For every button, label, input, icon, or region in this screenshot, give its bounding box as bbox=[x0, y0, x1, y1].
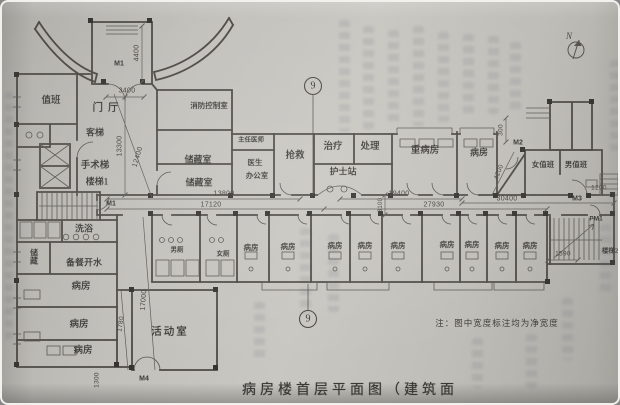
room-chief-physician: 主任医师 bbox=[238, 138, 264, 145]
door-label-m3: M3 bbox=[572, 196, 582, 203]
axis-marker-9-top: 9 bbox=[311, 81, 316, 92]
room-stair-1: 楼梯1 bbox=[86, 177, 109, 186]
room-ward: 病房 bbox=[391, 242, 406, 250]
room-ward: 病房 bbox=[73, 347, 92, 357]
dim-1300: 1300 bbox=[94, 372, 101, 388]
door-label-m1-entrance: M1 bbox=[114, 61, 124, 68]
door-label-pm1: PM1 bbox=[589, 216, 602, 223]
north-arrow-icon bbox=[568, 40, 584, 59]
dim-30400: 30400 bbox=[497, 196, 518, 203]
room-surgery-elevator: 手术梯 bbox=[81, 162, 110, 172]
room-icu-ward: 重病房 bbox=[411, 147, 440, 157]
dim-3400: 3400 bbox=[119, 88, 136, 95]
room-fire-control: 消防控制室 bbox=[190, 102, 228, 110]
photo-frame: 值班 门厅 客梯 手术梯 楼梯1 消防控制室 主任医师 储藏室 储藏室 医生 办… bbox=[0, 0, 620, 405]
room-treatment: 治疗 bbox=[323, 143, 342, 153]
room-doctor-office-line2: 办公室 bbox=[246, 172, 269, 180]
room-ward: 病房 bbox=[328, 242, 343, 250]
door-label-m2: M2 bbox=[513, 140, 523, 147]
room-female-duty: 女值班 bbox=[532, 161, 555, 169]
north-label: N bbox=[566, 31, 572, 41]
door-label-m1-corridor: M1 bbox=[106, 201, 116, 208]
dim-300: 300 bbox=[498, 124, 505, 136]
dim-27930: 27930 bbox=[424, 202, 445, 209]
dim-1200: 1200 bbox=[591, 185, 607, 192]
room-activity: 活动室 bbox=[151, 326, 189, 337]
detail-layer bbox=[13, 26, 618, 355]
room-ward: 病房 bbox=[440, 241, 455, 249]
room-doctor-office-line1: 医生 bbox=[248, 159, 263, 167]
room-male-duty: 男值班 bbox=[565, 161, 588, 169]
drawing-note: 注：图中宽度标注均为净宽度 bbox=[435, 317, 559, 329]
room-passenger-elevator: 客梯 bbox=[86, 128, 104, 137]
dim-1590: 1590 bbox=[555, 251, 571, 258]
room-ward: 病房 bbox=[281, 243, 296, 251]
room-male-toilet: 男厕 bbox=[171, 248, 184, 255]
floor-plan-drawing bbox=[2, 2, 618, 403]
dim-4400: 4400 bbox=[134, 45, 141, 62]
room-ward: 病房 bbox=[495, 242, 510, 250]
room-ward: 病房 bbox=[69, 321, 88, 331]
room-storage-1: 储藏室 bbox=[184, 155, 211, 164]
room-ward: 病房 bbox=[71, 283, 90, 293]
door-label-m4: M4 bbox=[139, 376, 149, 383]
dim-13300: 13300 bbox=[117, 136, 124, 157]
dim-19400: 19400 bbox=[389, 191, 410, 198]
dim-3100: 3100 bbox=[378, 198, 384, 213]
drawing-caption: 病房楼首层平面图（建筑面 bbox=[242, 379, 458, 399]
room-rescue: 抢救 bbox=[285, 152, 304, 162]
room-ward: 病房 bbox=[244, 244, 259, 252]
room-ward: 病房 bbox=[470, 148, 488, 157]
dim-13800: 13800 bbox=[214, 191, 235, 198]
room-disposal: 处理 bbox=[360, 143, 379, 153]
room-nurse-station: 护士站 bbox=[329, 167, 356, 176]
scanned-floor-plan-page: 值班 门厅 客梯 手术梯 楼梯1 消防控制室 主任医师 储藏室 储藏室 医生 办… bbox=[2, 2, 618, 403]
room-female-toilet: 女厕 bbox=[217, 252, 230, 259]
room-stair-2: 楼梯2 bbox=[602, 249, 618, 256]
room-ward: 病房 bbox=[465, 241, 480, 249]
room-pantry: 备餐开水 bbox=[66, 258, 102, 267]
room-storage-2: 储藏室 bbox=[185, 178, 212, 187]
room-storage-small: 储藏 bbox=[30, 250, 39, 267]
axis-marker-9-bottom: 9 bbox=[306, 314, 311, 325]
room-entrance-hall: 门厅 bbox=[93, 102, 124, 113]
room-duty: 值班 bbox=[41, 97, 60, 107]
room-ward: 病房 bbox=[358, 242, 373, 250]
dim-17120: 17120 bbox=[201, 202, 222, 209]
room-ward: 病房 bbox=[523, 242, 538, 250]
room-bath: 洗浴 bbox=[75, 224, 93, 233]
